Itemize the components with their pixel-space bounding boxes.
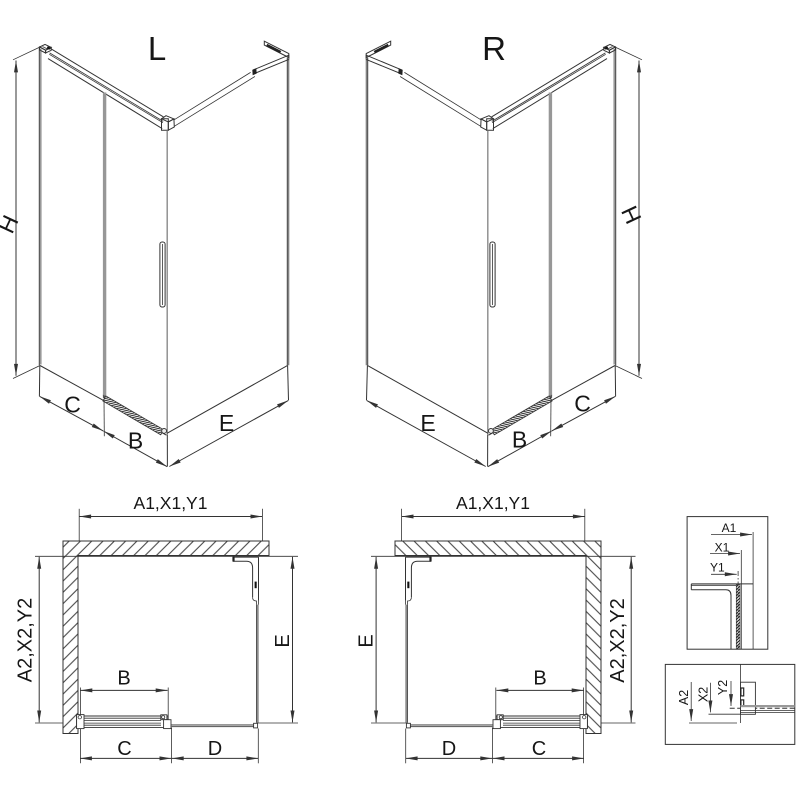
svg-text:E: E [272,634,294,647]
svg-text:C: C [117,738,131,760]
svg-text:B: B [533,668,546,690]
svg-text:D: D [442,738,456,760]
svg-text:R: R [482,30,506,67]
svg-text:X1: X1 [715,541,730,555]
svg-text:B: B [512,426,527,452]
svg-text:L: L [148,30,166,67]
svg-text:Y1: Y1 [710,561,725,575]
svg-text:A1: A1 [722,521,737,535]
svg-text:D: D [208,738,222,760]
svg-text:A2,X2,Y2: A2,X2,Y2 [15,598,37,683]
svg-text:E: E [420,410,435,436]
svg-text:C: C [532,738,546,760]
svg-text:C: C [64,391,81,417]
svg-text:A1,X1,Y1: A1,X1,Y1 [456,493,530,513]
svg-text:Y2: Y2 [716,680,730,695]
svg-text:B: B [128,427,143,453]
svg-text:E: E [219,410,234,436]
svg-text:X2: X2 [697,687,711,702]
svg-text:A1,X1,Y1: A1,X1,Y1 [134,493,208,513]
svg-text:A2,X2,Y2: A2,X2,Y2 [607,598,629,683]
svg-text:C: C [574,390,591,416]
svg-text:A2: A2 [677,690,691,705]
svg-text:B: B [117,668,130,690]
svg-text:E: E [356,634,378,647]
